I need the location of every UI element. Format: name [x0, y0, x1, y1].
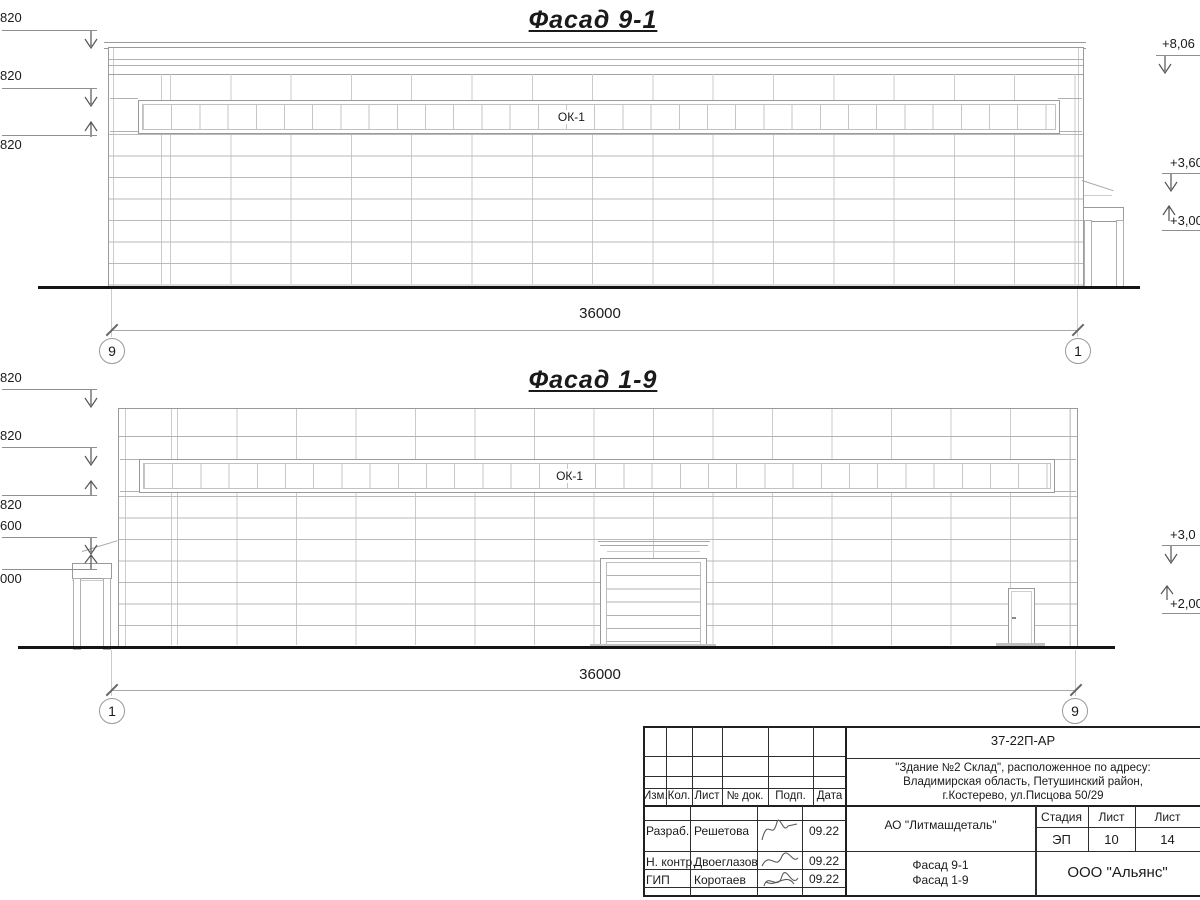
- elevation-arrow-up-icon: [84, 479, 98, 495]
- elevation-mark-shelf: [1162, 230, 1200, 231]
- header-list: Лист: [692, 790, 722, 802]
- panel-joint-line: [1054, 459, 1076, 460]
- porch-canopy-edge: [1084, 195, 1112, 196]
- window-band-mullions: [142, 104, 1056, 130]
- axis-circle-1: 1: [99, 698, 125, 724]
- sheets-total: 14: [1135, 832, 1200, 847]
- address-line-2: Владимирская область, Петушинский район,: [846, 775, 1200, 789]
- window-band-ok1: ОК-1: [138, 100, 1060, 134]
- panel-joint-line: [1054, 491, 1076, 492]
- facade-9-1-title: Фасад 9-1: [393, 6, 793, 35]
- ground-line-2: [18, 646, 1115, 649]
- porch-post: [1084, 220, 1092, 287]
- row-nkontr-role: Н. контр.: [646, 855, 696, 869]
- fascia-line: [109, 59, 1083, 60]
- titleblock-border: [643, 726, 645, 897]
- panel-joint-line: [110, 98, 138, 99]
- elevation-mark-text: 600: [0, 518, 22, 533]
- wall-panel-grid-horizontal: [109, 134, 1083, 286]
- facade-1-9-title: Фасад 1-9: [393, 366, 793, 395]
- elevation-mark-text: +3,00: [1170, 213, 1200, 228]
- titleblock-line: [643, 776, 845, 777]
- gate-canopy-line: [607, 551, 700, 552]
- titleblock-line: [643, 851, 1200, 852]
- titleblock-border: [643, 726, 1200, 728]
- dimension-text-1: 36000: [540, 305, 660, 322]
- sheet-header: Лист: [1088, 810, 1135, 824]
- elevation-mark-shelf: [2, 88, 97, 89]
- titleblock-line: [643, 869, 845, 870]
- elevation-mark-text: 820: [0, 497, 22, 512]
- stage-value: ЭП: [1035, 832, 1088, 847]
- ground-line-1: [38, 286, 1140, 289]
- elevation-arrow-down-icon: [1164, 546, 1178, 564]
- header-podp: Подп.: [768, 790, 813, 802]
- entrance-door: [1008, 588, 1035, 646]
- elevation-mark-shelf: [2, 569, 97, 570]
- project-address: "Здание №2 Склад", расположенное по адре…: [846, 761, 1200, 803]
- address-line-1: "Здание №2 Склад", расположенное по адре…: [846, 761, 1200, 775]
- gate-canopy-line: [598, 541, 710, 542]
- elevation-mark-shelf: [1162, 613, 1200, 614]
- panel-joint-line: [120, 491, 139, 492]
- dimension-text-2: 36000: [540, 666, 660, 683]
- door-handle-icon: [1012, 617, 1016, 619]
- panel-joint-line: [1058, 98, 1082, 99]
- elevation-mark-shelf: [2, 537, 97, 538]
- document-number: 37-22П-АР: [846, 733, 1200, 748]
- elevation-mark-text: 820: [0, 68, 22, 83]
- elevation-arrow-down-icon: [84, 31, 98, 49]
- elevation-mark-text: +3,60: [1170, 155, 1200, 170]
- titleblock-line: [643, 820, 845, 821]
- window-band-label: ОК-1: [550, 110, 593, 124]
- porch-post: [103, 578, 111, 650]
- titleblock-line: [643, 788, 845, 789]
- address-line-3: г.Костерево, ул.Писцова 50/29: [846, 789, 1200, 803]
- axis-circle-9: 9: [99, 338, 125, 364]
- header-izm: Изм.: [643, 790, 666, 802]
- panel-joint-line: [119, 436, 1077, 437]
- elevation-mark-shelf: [2, 389, 97, 390]
- panel-joint-line: [110, 131, 138, 132]
- row-nkontr-name: Двоеглазов: [694, 855, 758, 869]
- window-band-ok1: ОК-1: [139, 459, 1055, 493]
- porch-post: [73, 578, 81, 650]
- window-band-mullions: [143, 463, 1051, 489]
- sheet-number: 10: [1088, 832, 1135, 847]
- sectional-gate: [600, 558, 707, 646]
- fascia-line: [109, 65, 1083, 66]
- drawing-title-cell: Фасад 9-1 Фасад 1-9: [846, 858, 1035, 888]
- elevation-arrow-down-icon: [84, 89, 98, 107]
- elevation-mark-shelf: [2, 447, 97, 448]
- signature-icon: [758, 812, 800, 846]
- elevation-mark-text: +2,00: [1170, 596, 1200, 611]
- gate-canopy-line: [600, 545, 708, 546]
- titleblock-border: [643, 895, 1200, 897]
- gate-slats: [606, 562, 701, 645]
- row-razrab-name: Решетова: [694, 824, 749, 838]
- header-data: Дата: [813, 790, 846, 802]
- porch-post: [1116, 220, 1124, 287]
- row-razrab-date: 09.22: [802, 824, 846, 838]
- axis-circle-1: 1: [1065, 338, 1091, 364]
- titleblock-line: [1035, 827, 1200, 828]
- signature-icon: [756, 848, 802, 894]
- axis-circle-9: 9: [1062, 698, 1088, 724]
- row-gip-name: Коротаев: [694, 873, 746, 887]
- facade-1-9-building: ОК-1: [118, 408, 1078, 648]
- elevation-arrow-up-icon: [84, 553, 98, 569]
- wall-panel-grid-horizontal: [119, 496, 1077, 647]
- elevation-mark-text: 820: [0, 370, 22, 385]
- row-gip-role: ГИП: [646, 873, 670, 887]
- porch-canopy-slope: [1082, 180, 1114, 191]
- titleblock-line: [643, 887, 845, 888]
- dimension-line-1: [112, 330, 1078, 331]
- elevation-mark-text: +3,0: [1170, 527, 1196, 542]
- drawing-title-line-2: Фасад 1-9: [846, 873, 1035, 888]
- elevation-mark-shelf: [2, 135, 97, 136]
- dimension-line-2: [112, 690, 1076, 691]
- elevation-arrow-down-icon: [84, 448, 98, 466]
- header-ndok: № док.: [722, 790, 768, 802]
- panel-joint-line: [120, 459, 139, 460]
- stage-header: Стадия: [1035, 810, 1088, 824]
- elevation-mark-text: 820: [0, 428, 22, 443]
- panel-joint-line: [1058, 131, 1082, 132]
- titleblock-line: [846, 758, 1200, 759]
- sheets-header: Лист: [1135, 810, 1200, 824]
- elevation-arrow-down-icon: [84, 390, 98, 408]
- titleblock-line: [643, 756, 845, 757]
- elevation-mark-text: 820: [0, 10, 22, 25]
- row-gip-date: 09.22: [802, 872, 846, 886]
- elevation-arrow-down-icon: [1164, 174, 1178, 192]
- elevation-mark-text: 820: [0, 137, 22, 152]
- elevation-mark-text: 000: [0, 571, 22, 586]
- elevation-mark-shelf: [2, 30, 97, 31]
- customer-company: АО "Литмашдеталь": [846, 818, 1035, 832]
- row-nkontr-date: 09.22: [802, 854, 846, 868]
- elevation-arrow-down-icon: [1158, 56, 1172, 74]
- facade-9-1-building: ОК-1: [108, 47, 1084, 288]
- row-razrab-role: Разраб.: [646, 824, 689, 838]
- drawing-title-line-1: Фасад 9-1: [846, 858, 1035, 873]
- window-band-label: ОК-1: [548, 469, 591, 483]
- header-kol: Кол.: [666, 790, 692, 802]
- drawing-sheet: Фасад 9-1 ОК-1 36000 9 1 820 820: [0, 0, 1200, 900]
- titleblock-divider: [643, 805, 1200, 807]
- design-organization: ООО "Альянс": [1035, 864, 1200, 881]
- elevation-mark-shelf: [2, 495, 97, 496]
- elevation-mark-text: +8,06: [1162, 36, 1195, 51]
